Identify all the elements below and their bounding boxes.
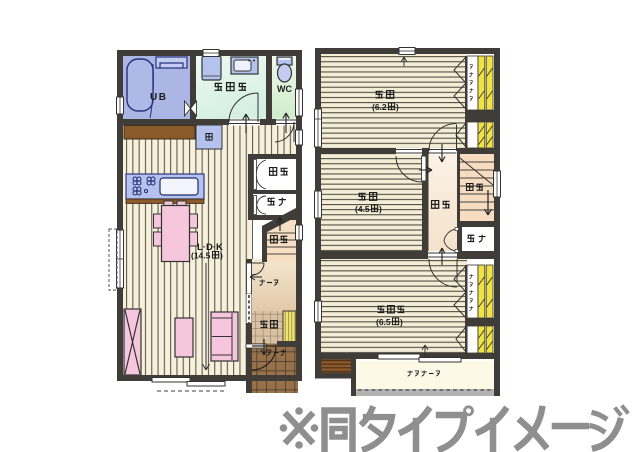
svg-text:WC: WC bbox=[277, 84, 292, 94]
svg-text:): ) bbox=[400, 317, 403, 327]
svg-text:(6.2: (6.2 bbox=[372, 102, 387, 112]
svg-text:): ) bbox=[379, 204, 382, 214]
svg-text:(4.5: (4.5 bbox=[355, 204, 370, 214]
svg-text:): ) bbox=[220, 251, 223, 261]
svg-text:(14.5: (14.5 bbox=[191, 251, 211, 261]
svg-text:UB: UB bbox=[150, 92, 167, 103]
svg-text:): ) bbox=[396, 102, 399, 112]
svg-text:(6.5: (6.5 bbox=[376, 317, 391, 327]
